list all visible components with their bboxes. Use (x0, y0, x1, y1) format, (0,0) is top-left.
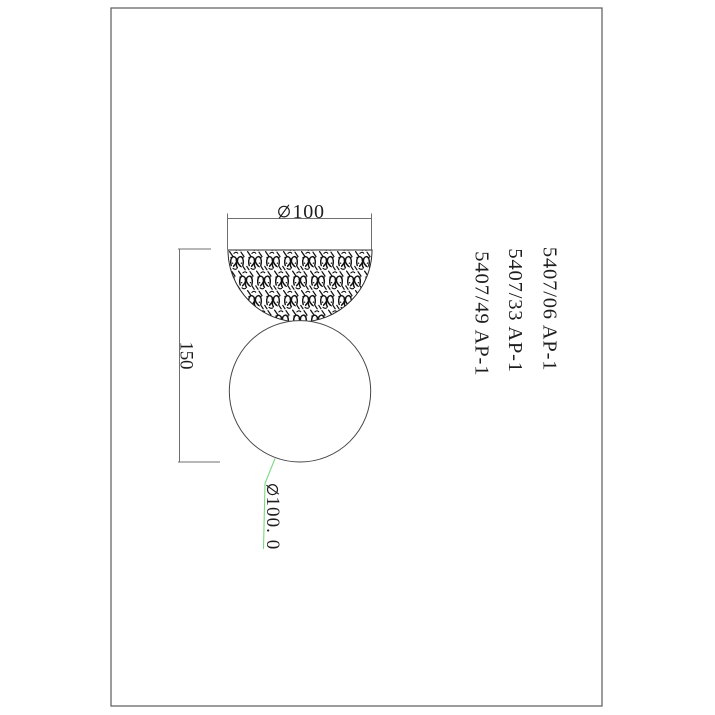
svg-text:5407/33 AP-1: 5407/33 AP-1 (504, 248, 526, 372)
svg-text:5407/06 AP-1: 5407/06 AP-1 (539, 247, 561, 371)
svg-text:5407/49 AP-1: 5407/49 AP-1 (471, 251, 493, 375)
svg-text:100. 0: 100. 0 (262, 497, 283, 550)
svg-text:150: 150 (176, 342, 197, 370)
svg-text:100: 100 (293, 201, 325, 223)
